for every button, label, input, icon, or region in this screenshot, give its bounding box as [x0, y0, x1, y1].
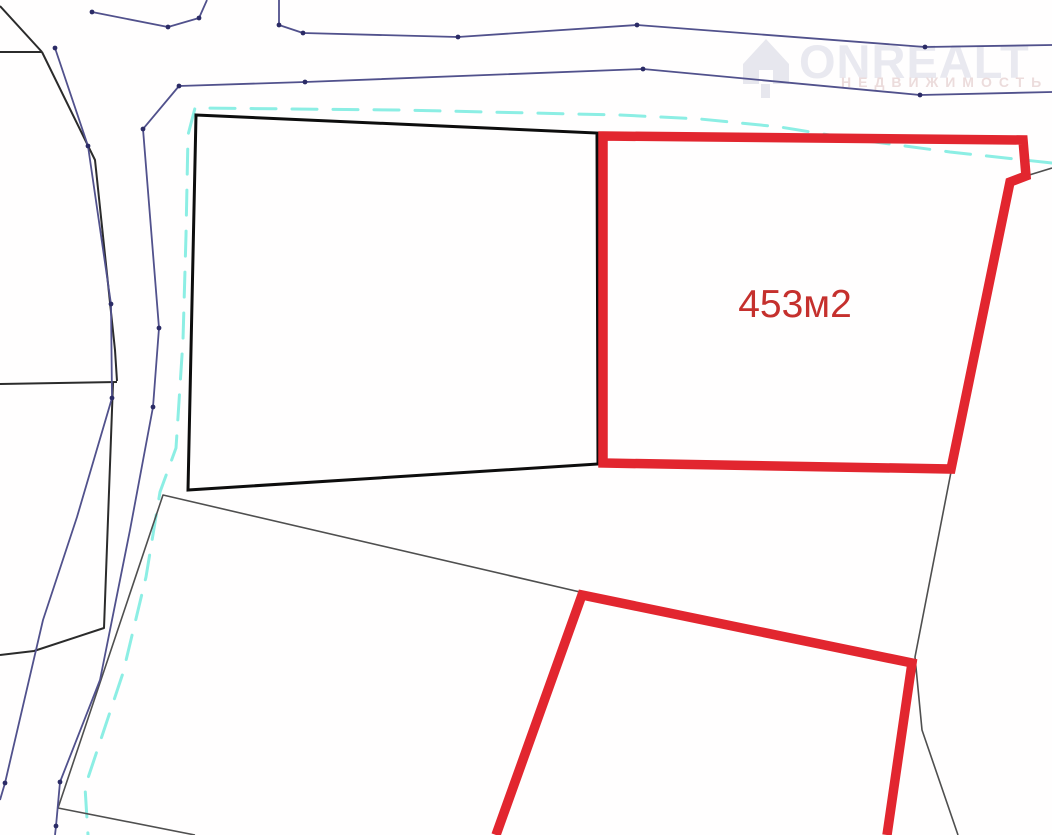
cadastral-map-screenshot: ONREALT НЕДВИЖИМОСТЬ 453м2 — [0, 0, 1052, 835]
road-vertex-dot — [109, 302, 114, 307]
road-vertex-dot — [141, 127, 146, 132]
road-vertex-dot — [110, 396, 115, 401]
topleft-parcel-diagonal — [0, 6, 42, 52]
road-vertex-dot — [53, 46, 58, 51]
road-vertex-dot — [635, 23, 640, 28]
road-polyline-top-a — [92, 0, 207, 27]
road-vertex-dot — [3, 781, 8, 786]
road-vertex-dot — [303, 80, 308, 85]
topleft-parcel-bottom-edge — [0, 382, 117, 384]
black-parcel-outline — [188, 115, 598, 490]
left-parcel-lower-boundary — [0, 383, 113, 655]
road-vertex-dot — [86, 144, 91, 149]
road-polyline-top-b — [279, 0, 1052, 47]
red-parcel-bottom-outline — [496, 595, 912, 835]
road-vertex-dot — [177, 84, 182, 89]
road-vertex-dot — [197, 16, 202, 21]
area-label: 453м2 — [738, 283, 852, 326]
road-vertex-dot — [301, 31, 306, 36]
road-vertex-dot — [641, 67, 646, 72]
right-boundary-lower — [915, 472, 958, 835]
topleft-parcel-right-edge — [42, 52, 117, 381]
parcel-map: 453м2 — [0, 0, 1052, 835]
road-vertex-dot — [456, 35, 461, 40]
road-vertex-dot — [90, 10, 95, 15]
road-vertex-dot — [151, 405, 156, 410]
road-vertex-dot — [157, 326, 162, 331]
road-vertex-dot — [54, 824, 59, 829]
road-vertex-dot — [918, 93, 923, 98]
road-vertex-dot — [923, 45, 928, 50]
road-vertex-dots — [3, 10, 928, 829]
road-vertex-dot — [166, 25, 171, 30]
bottom-parcel-outline — [58, 495, 580, 835]
road-vertex-dot — [58, 780, 63, 785]
road-vertex-dot — [277, 23, 282, 28]
